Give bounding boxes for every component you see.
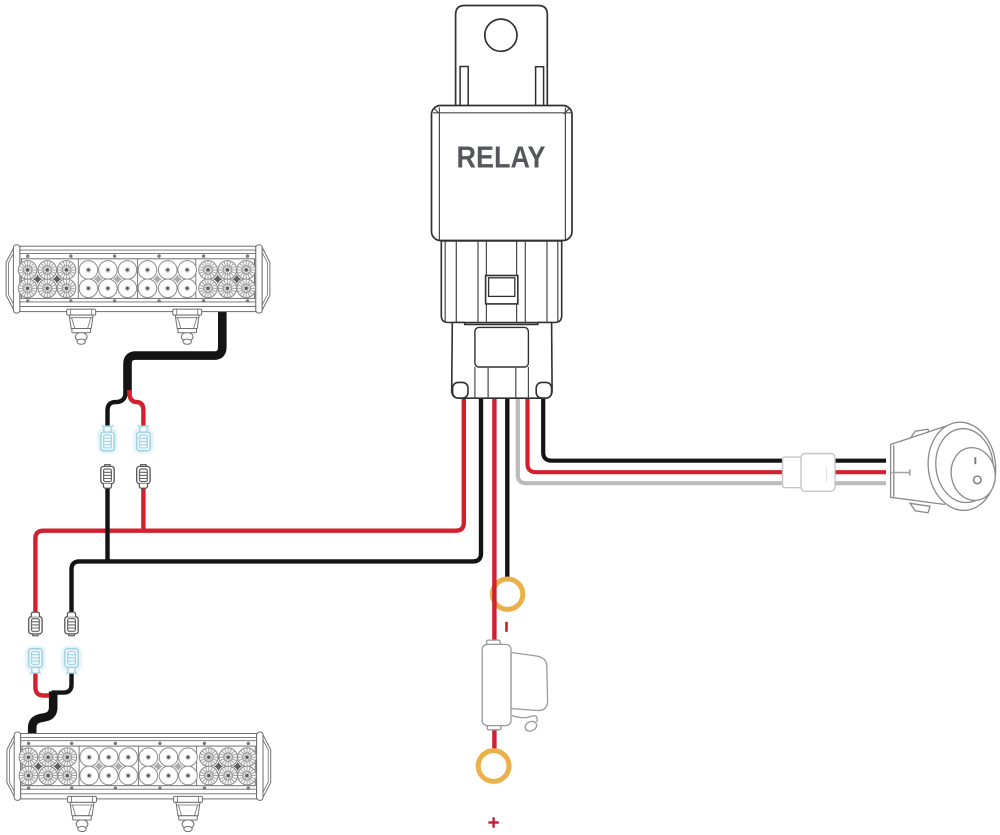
svg-text:RELAY: RELAY: [457, 139, 546, 174]
